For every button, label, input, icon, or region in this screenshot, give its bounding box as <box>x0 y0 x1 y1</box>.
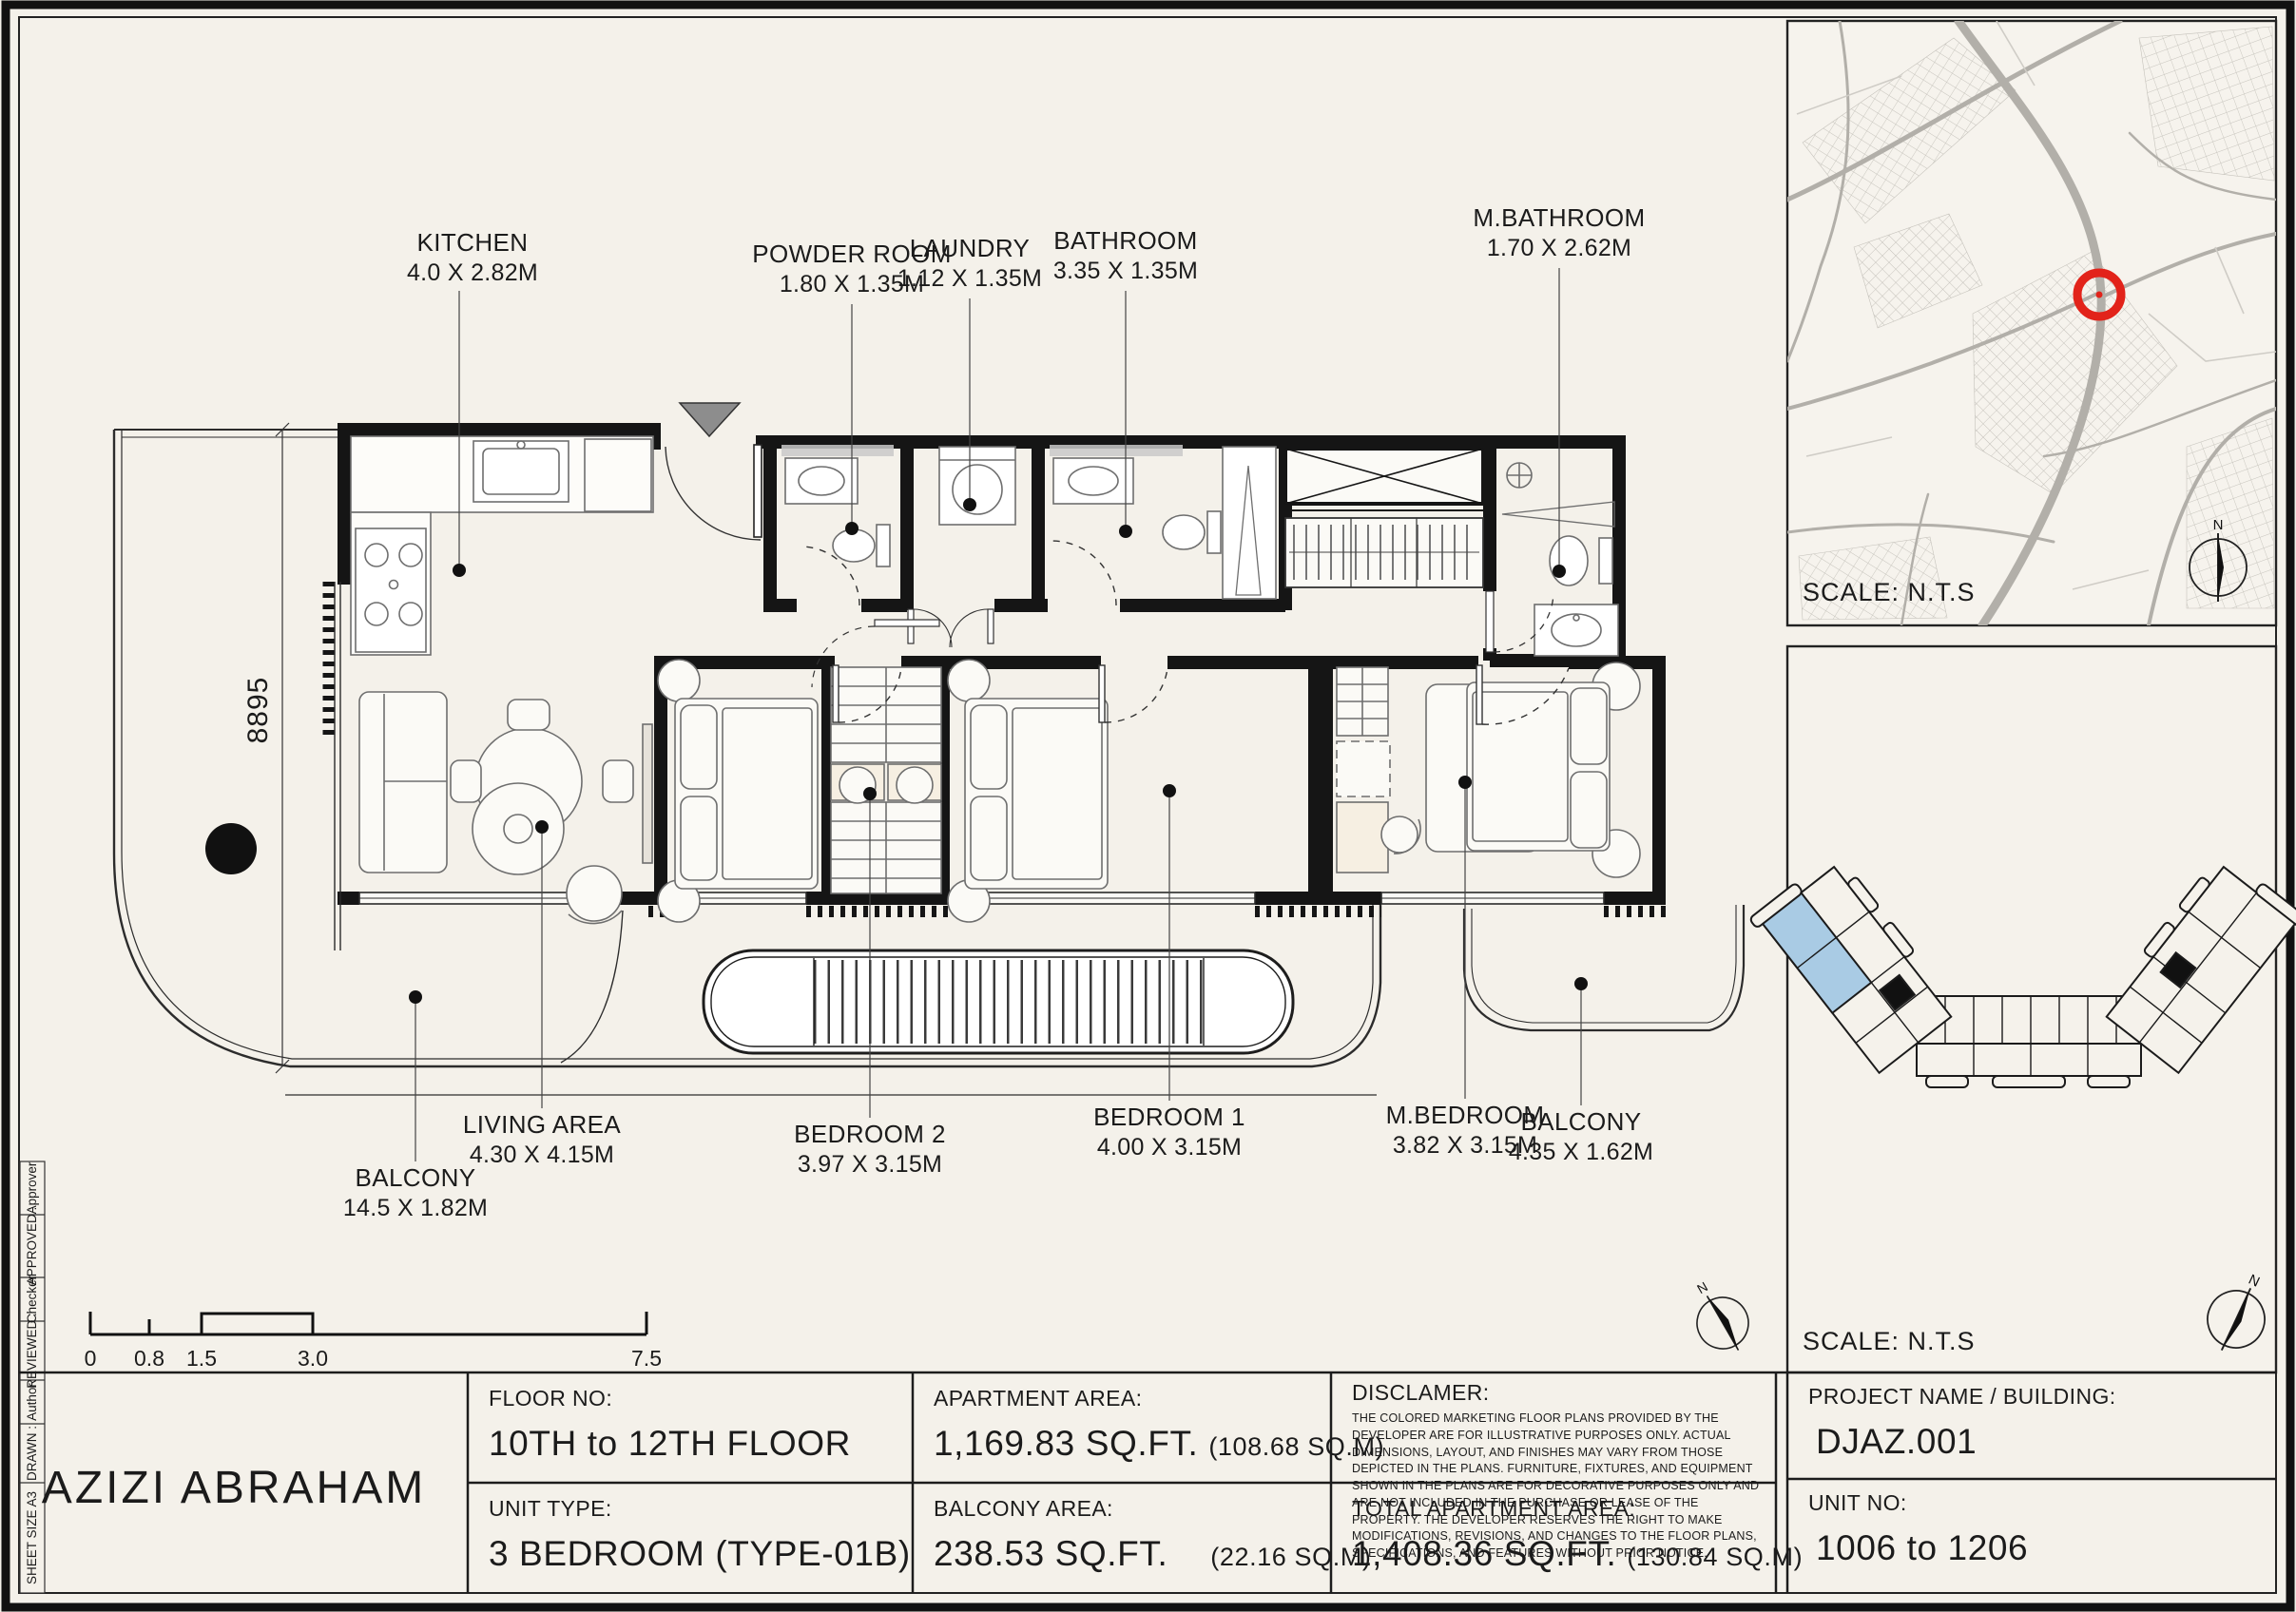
scale-tick-15: 1.5 <box>186 1346 217 1372</box>
room-label-laundry: LAUNDRY 1.12 X 1.35M <box>897 234 1042 293</box>
unit-no-label: UNIT NO: <box>1808 1490 1907 1516</box>
floor-no-label: FLOOR NO: <box>489 1386 612 1411</box>
reviewed-label: REVIEWED : <box>25 1313 39 1389</box>
balcony-planter <box>704 950 1293 1053</box>
drawing-sheet: SHEET SIZE A3 DRAWN : Author REVIEWED : … <box>0 0 2296 1612</box>
approved-label: APPROVED : <box>25 1207 39 1286</box>
scale-tick-08: 0.8 <box>134 1346 164 1372</box>
room-label-bathroom: BATHROOM 3.35 X 1.35M <box>1053 226 1198 285</box>
total-area-sqft: 1,408.36 SQ.FT. <box>1352 1534 1616 1573</box>
key-plan-panel: N <box>1749 646 2296 1372</box>
hall-wardrobe <box>1285 518 1483 587</box>
unit-no-value: 1006 to 1206 <box>1816 1528 2028 1568</box>
elevator-shaft <box>1285 449 1483 504</box>
disclaimer-label: DISCLAMER: <box>1352 1380 1490 1406</box>
project-name-label: PROJECT NAME / BUILDING: <box>1808 1384 2116 1410</box>
room-label-balcony-left: BALCONY 14.5 X 1.82M <box>343 1163 488 1222</box>
balcony-area-label: BALCONY AREA: <box>934 1496 1113 1522</box>
apartment-area-value: 1,169.83 SQ.FT. (108.68 SQ.M) <box>934 1424 1384 1464</box>
location-marker-dot <box>2096 292 2103 298</box>
key-scale-label: SCALE: N.T.S <box>1803 1327 1976 1356</box>
scale-tick-30: 3.0 <box>298 1346 328 1372</box>
room-label-bedroom2: BEDROOM 2 3.97 X 3.15M <box>794 1120 946 1179</box>
plan-north-compass: N <box>1676 1268 1761 1363</box>
location-map-panel: N <box>1787 21 2276 625</box>
entry-door <box>666 403 762 540</box>
dimension-8895: 8895 <box>242 677 275 744</box>
column-dot <box>205 823 257 874</box>
project-title: AZIZI ABRAHAM <box>29 1462 439 1514</box>
unit-type-label: UNIT TYPE: <box>489 1496 612 1522</box>
room-label-bedroom1: BEDROOM 1 4.00 X 3.15M <box>1093 1103 1245 1161</box>
balcony-area-sqft: 238.53 SQ.FT. <box>934 1534 1167 1573</box>
scale-bar <box>90 1312 646 1334</box>
floor-no-value: 10TH to 12TH FLOOR <box>489 1424 851 1464</box>
map-scale-label: SCALE: N.T.S <box>1803 578 1976 607</box>
total-area-sqm: (130.84 SQ.M) <box>1627 1543 1803 1571</box>
furniture <box>351 436 1640 924</box>
balcony-area-sqm: (22.16 SQ.M) <box>1210 1543 1371 1571</box>
approved-by: Approver <box>25 1161 39 1214</box>
total-area-value: 1,408.36 SQ.FT. (130.84 SQ.M) <box>1352 1534 1803 1574</box>
project-name-value: DJAZ.001 <box>1816 1422 1977 1462</box>
room-label-balcony-right: BALCONY 4.35 X 1.62M <box>1509 1107 1653 1166</box>
apartment-area-label: APARTMENT AREA: <box>934 1386 1142 1411</box>
scale-tick-0: 0 <box>85 1346 97 1372</box>
unit-type-value: 3 BEDROOM (TYPE-01B) <box>489 1534 911 1574</box>
scale-tick-75: 7.5 <box>631 1346 662 1372</box>
balcony-area-value: 238.53 SQ.FT. (22.16 SQ.M) <box>934 1534 1372 1574</box>
room-label-kitchen: KITCHEN 4.0 X 2.82M <box>407 228 538 287</box>
total-area-label: TOTAL APARTMENT AREA: <box>1352 1496 1635 1522</box>
apartment-area-sqft: 1,169.83 SQ.FT. <box>934 1424 1198 1463</box>
room-label-living: LIVING AREA 4.30 X 4.15M <box>463 1110 621 1169</box>
map-north-label: N <box>2213 517 2224 533</box>
plan-north-label: N <box>1694 1278 1710 1296</box>
room-label-mbathroom: M.BATHROOM 1.70 X 2.62M <box>1473 203 1645 262</box>
dimension-line <box>276 423 289 1073</box>
entry-arrow-icon <box>680 403 740 436</box>
